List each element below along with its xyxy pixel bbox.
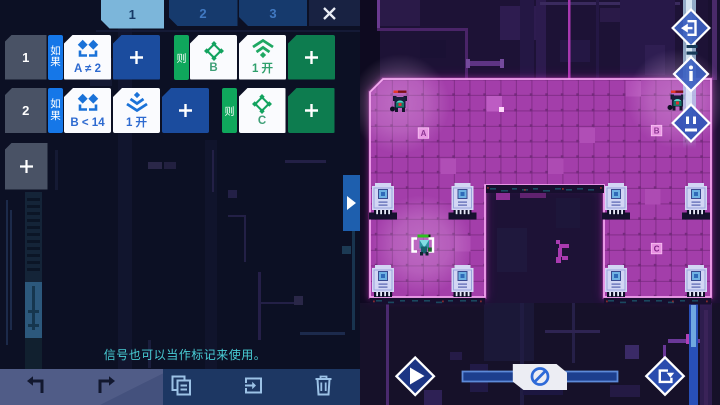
svg-text:C: C: [654, 245, 660, 254]
